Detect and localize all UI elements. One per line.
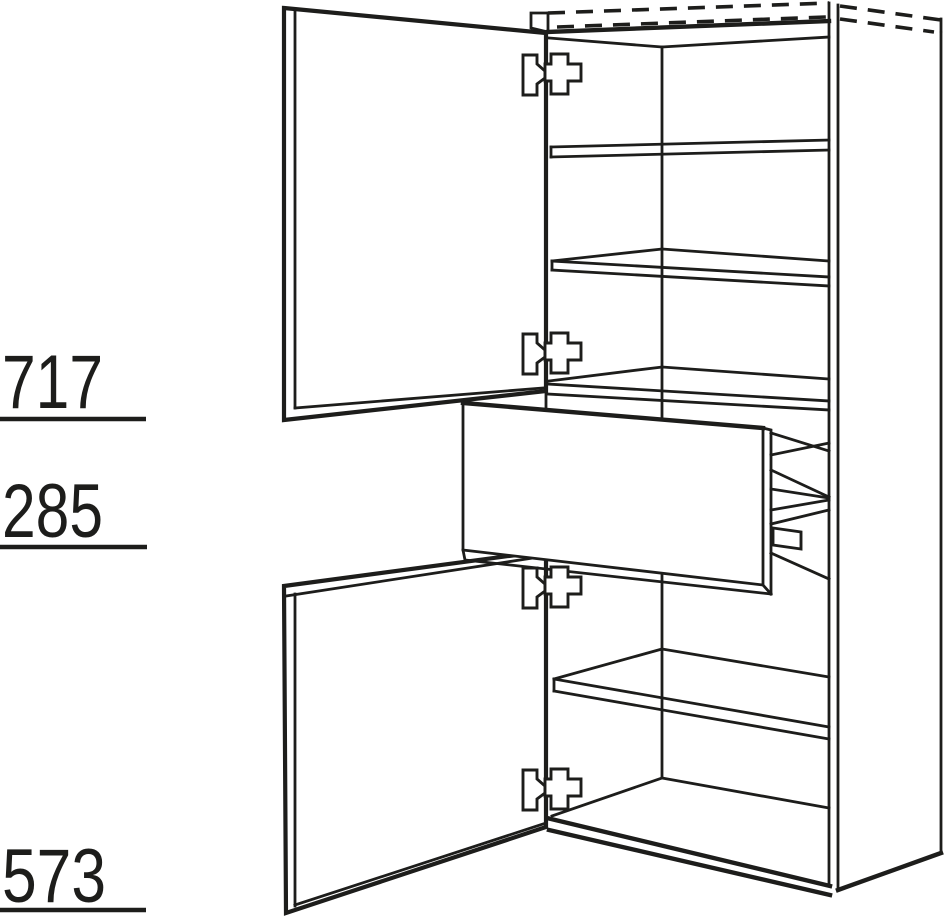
cabinet-technical-drawing: 717 285 573 [0, 0, 945, 918]
dimension-label-717: 717 [2, 340, 103, 425]
drawer-slide-rails [771, 433, 829, 579]
dimension-label-285: 285 [2, 469, 103, 554]
shelf-lower [554, 649, 829, 739]
upper-door [284, 8, 546, 420]
drawer-front [463, 403, 771, 594]
concealed-hinge-icon [523, 769, 581, 810]
concealed-hinge-icon [523, 333, 581, 374]
dimension-labels: 717 285 573 [0, 340, 147, 918]
cabinet-line-art: 717 285 573 [0, 0, 945, 918]
upper-compartment-floor [548, 367, 829, 410]
concealed-hinge-icon [523, 54, 581, 95]
shelf-upper-1 [551, 140, 829, 157]
shelf-upper-2 [552, 249, 829, 286]
lower-door [284, 551, 546, 913]
ceiling-edge [549, 37, 829, 47]
cabinet-bottom [547, 778, 830, 895]
dimension-label-573: 573 [2, 834, 106, 918]
right-side-panel [829, 3, 941, 890]
drawer [463, 403, 829, 594]
